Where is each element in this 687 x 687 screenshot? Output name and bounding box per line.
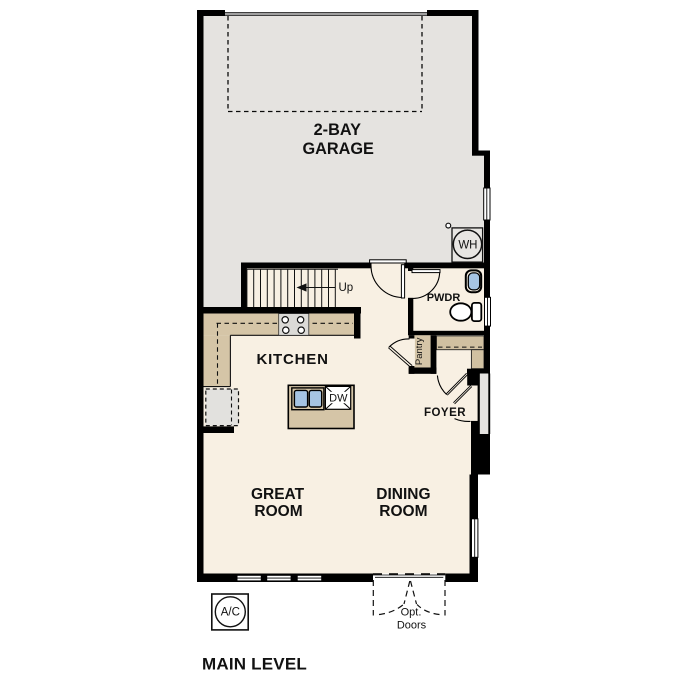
svg-text:GARAGE: GARAGE (302, 140, 374, 158)
svg-text:Doors: Doors (397, 620, 427, 632)
svg-text:A/C: A/C (221, 607, 240, 619)
svg-text:DINING: DINING (376, 486, 430, 503)
svg-text:2-BAY: 2-BAY (314, 121, 361, 139)
svg-text:DW: DW (329, 393, 348, 405)
svg-text:ROOM: ROOM (254, 503, 302, 520)
svg-text:GREAT: GREAT (251, 486, 305, 503)
svg-text:Pantry: Pantry (414, 337, 425, 365)
svg-text:WH: WH (458, 240, 477, 252)
svg-text:Opt.: Opt. (401, 607, 422, 619)
svg-text:MAIN LEVEL: MAIN LEVEL (202, 655, 307, 674)
svg-text:ROOM: ROOM (379, 503, 427, 520)
svg-text:FOYER: FOYER (424, 407, 466, 419)
svg-text:PWDR: PWDR (427, 292, 461, 304)
svg-text:KITCHEN: KITCHEN (256, 351, 328, 368)
svg-text:Up: Up (339, 282, 354, 294)
